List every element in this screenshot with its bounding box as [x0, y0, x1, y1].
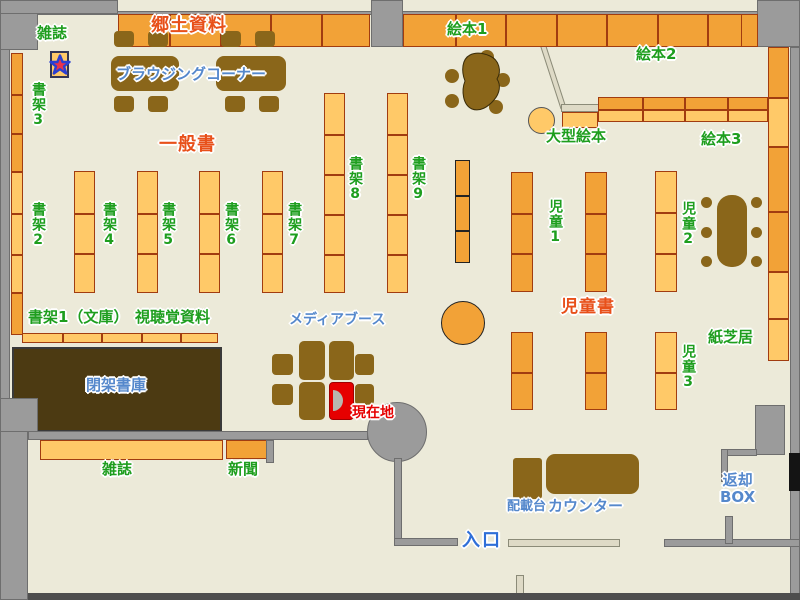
label-return-box: 返却 BOX	[720, 472, 755, 507]
label-loading-table: 配載台	[507, 500, 546, 515]
stool	[701, 256, 712, 267]
shelf-row-bunko-divider	[62, 334, 64, 342]
chair	[114, 96, 134, 112]
media-booth-seat	[355, 384, 374, 405]
label-shelf-5: 書架5	[160, 202, 176, 249]
wall-returnbox-block	[755, 405, 785, 455]
shelf-col-jido1-b-divider	[586, 213, 606, 215]
label-children-2: 児童2	[680, 201, 696, 248]
shelf-newspapers	[226, 440, 267, 459]
bottom-dark-strip	[28, 593, 800, 600]
shelf-rwall-3	[768, 147, 789, 272]
shelf-col-shoka8-divider	[325, 254, 344, 256]
shelf-row-ehon-bottom-divider	[684, 111, 686, 121]
media-booth-desk	[299, 382, 325, 420]
stool	[701, 197, 712, 208]
media-booth-seat	[272, 354, 293, 375]
shelf-col-a-divider	[75, 213, 94, 215]
shelf-row-ehon-bottom-divider	[642, 111, 644, 121]
wall-entrance-h	[394, 538, 458, 546]
shelf-top-row-right-divider	[707, 15, 709, 46]
shelf-col-c-divider	[200, 253, 219, 255]
shelf-col-jido2-divider	[656, 212, 676, 214]
shelf-col-b-divider	[138, 213, 157, 215]
shelf-wall-mid-divider	[12, 213, 22, 215]
children-table	[717, 195, 747, 267]
shelf-row-ehon-bottom	[598, 110, 768, 122]
label-return-box-line2: BOX	[720, 489, 755, 506]
shelf-col-jido3-c	[655, 332, 677, 410]
shelf-wall-upper	[11, 53, 23, 172]
label-newspapers: 新聞	[228, 461, 258, 478]
label-kamishibai: 紙芝居	[708, 329, 753, 346]
shelf-col-a-divider	[75, 253, 94, 255]
label-shelf-8: 書架8	[347, 156, 363, 203]
label-shelf-2: 書架2	[30, 202, 46, 249]
chair	[255, 31, 275, 47]
door-bar	[508, 539, 620, 547]
shelf-col-a	[74, 171, 95, 293]
shelf-col-shoka8-divider	[325, 174, 344, 176]
label-shelf-1-bunko: 書架1（文庫）	[28, 309, 128, 326]
label-picture-books-3: 絵本3	[701, 131, 741, 148]
label-shelf-7: 書架7	[286, 202, 302, 249]
stool	[445, 69, 459, 83]
shelf-row-bunko	[22, 333, 218, 343]
partition-bar	[561, 104, 599, 112]
shelf-wall-mid-divider	[12, 254, 22, 256]
shelf-col-jido2	[655, 171, 677, 292]
round-stand	[441, 301, 485, 345]
shelf-row-bunko-divider	[180, 334, 182, 342]
shelf-col-jido3-a-divider	[512, 372, 532, 374]
shelf-rwall-4	[768, 272, 789, 361]
label-picture-books-1: 絵本1	[447, 21, 487, 38]
media-booth-seat	[355, 354, 374, 375]
shelf-col-shoka9-divider	[388, 134, 407, 136]
shelf-col-d-divider	[263, 213, 282, 215]
shelf-rwall-4-divider	[769, 318, 788, 320]
shelf-wall-lower	[11, 293, 23, 335]
shelf-col-jido3-a	[511, 332, 533, 410]
shelf-rwall-1	[768, 47, 789, 98]
shelf-col-jido1-b	[585, 172, 607, 292]
label-counter: カウンター	[548, 498, 623, 515]
counter-block	[546, 454, 639, 494]
label-magazines-bottom: 雑誌	[102, 461, 132, 478]
shelf-row-ehon-top-divider	[684, 98, 686, 109]
shelf-col-jido1-b-divider	[586, 253, 606, 255]
stool	[445, 94, 459, 108]
label-audiovisual: 視聴覚資料	[135, 309, 210, 326]
shelf-top-row-right-divider	[556, 15, 558, 46]
label-shelf-6: 書架6	[223, 202, 239, 249]
shelf-wall-mid	[11, 172, 23, 293]
library-floor-map: 雑誌 郷土資料 ブラウジングコーナー 書架3 一般書 書架2 書架4 書架5 書…	[0, 0, 800, 600]
chair	[225, 96, 245, 112]
shelf-rwall-3-divider	[769, 211, 788, 213]
label-picture-books-2: 絵本2	[636, 46, 676, 63]
label-children-1: 児童1	[547, 199, 563, 246]
stool	[701, 227, 712, 238]
returnbox-slot	[789, 453, 800, 491]
label-closed-stacks: 閉架書庫	[86, 377, 146, 394]
shelf-col-jido3-b	[585, 332, 607, 410]
wall-right-strip	[790, 47, 800, 600]
kids-table	[458, 50, 508, 116]
wall-topleft-strip	[0, 0, 118, 14]
shelf-row-bunko-divider	[141, 334, 143, 342]
shelf-col-jido2-divider	[656, 253, 676, 255]
media-booth-seat	[272, 384, 293, 405]
shelf-col-c	[199, 171, 220, 293]
shelf-col-center-dark-divider	[456, 230, 469, 232]
wall-under-stacks	[28, 431, 368, 440]
wall-notch	[0, 398, 38, 432]
label-children-3: 児童3	[680, 344, 696, 391]
label-children-books: 児童書	[561, 298, 615, 318]
shelf-rwall-2	[768, 98, 789, 147]
shelf-col-jido1-a	[511, 172, 533, 292]
shelf-wall-upper-divider	[12, 133, 22, 135]
wall-newspaper-end	[266, 440, 274, 463]
shelf-col-shoka8	[324, 93, 345, 293]
shelf-col-center-dark-divider	[456, 195, 469, 197]
wall-stub-lower	[725, 516, 733, 544]
chair	[148, 96, 168, 112]
chair	[114, 31, 134, 47]
shelf-top-row-right-divider	[657, 15, 659, 46]
shelf-top-row-right-divider	[505, 15, 507, 46]
chair	[259, 96, 279, 112]
shelf-col-b-divider	[138, 253, 157, 255]
label-current-location: 現在地	[352, 405, 394, 421]
label-magazines-top: 雑誌	[37, 25, 67, 42]
shelf-wall-upper-divider	[12, 94, 22, 96]
shelf-col-center-dark	[455, 160, 470, 263]
label-large-picture-books: 大型絵本	[546, 128, 606, 145]
shelf-under-bar	[562, 112, 598, 128]
wall-entrance-v	[394, 458, 402, 545]
shelf-top-corner-piece	[741, 14, 758, 47]
shelf-col-shoka9	[387, 93, 408, 293]
shelf-col-shoka8-divider	[325, 214, 344, 216]
stool	[751, 256, 762, 267]
shelf-col-shoka9-divider	[388, 254, 407, 256]
label-shelf-9: 書架9	[410, 156, 426, 203]
shelf-col-jido1-a-divider	[512, 253, 532, 255]
label-return-box-line1: 返却	[720, 472, 755, 489]
shelf-top-row-right-divider	[606, 15, 608, 46]
shelf-col-b	[137, 171, 158, 293]
label-media-booth: メディアブース	[289, 312, 385, 328]
label-entrance: 入口	[462, 531, 502, 552]
shelf-col-d	[262, 171, 283, 293]
shelf-row-bunko-divider	[101, 334, 103, 342]
label-general-books: 一般書	[159, 135, 216, 156]
label-shelf-3: 書架3	[30, 82, 46, 129]
shelf-magazines	[40, 440, 223, 460]
label-shelf-4: 書架4	[101, 202, 117, 249]
shelf-col-shoka9-divider	[388, 214, 407, 216]
media-booth-desk	[329, 341, 354, 380]
shelf-col-c-divider	[200, 213, 219, 215]
shelf-row-ehon-bottom-divider	[727, 111, 729, 121]
shelf-col-jido3-b-divider	[586, 372, 606, 374]
shelf-row-ehon-top-divider	[727, 98, 729, 109]
shelf-row-ehon-top	[598, 97, 768, 110]
shelf-row-ehon-top-divider	[642, 98, 644, 109]
loading-table-block	[513, 458, 542, 499]
shelf-col-shoka8-divider	[325, 134, 344, 136]
shelf-col-d-divider	[263, 253, 282, 255]
stool	[751, 197, 762, 208]
media-booth-desk	[299, 341, 325, 380]
label-browsing-corner: ブラウジングコーナー	[116, 66, 266, 83]
shelf-top-row-left-divider	[321, 15, 323, 46]
wall-pillar-top	[371, 0, 403, 47]
star-icon	[48, 53, 72, 77]
shelf-col-jido1-a-divider	[512, 213, 532, 215]
wall-topright-corner	[757, 0, 800, 47]
shelf-col-shoka9-divider	[388, 174, 407, 176]
label-local-materials: 郷土資料	[151, 16, 227, 37]
stool	[751, 227, 762, 238]
shelf-col-jido3-c-divider	[656, 372, 676, 374]
